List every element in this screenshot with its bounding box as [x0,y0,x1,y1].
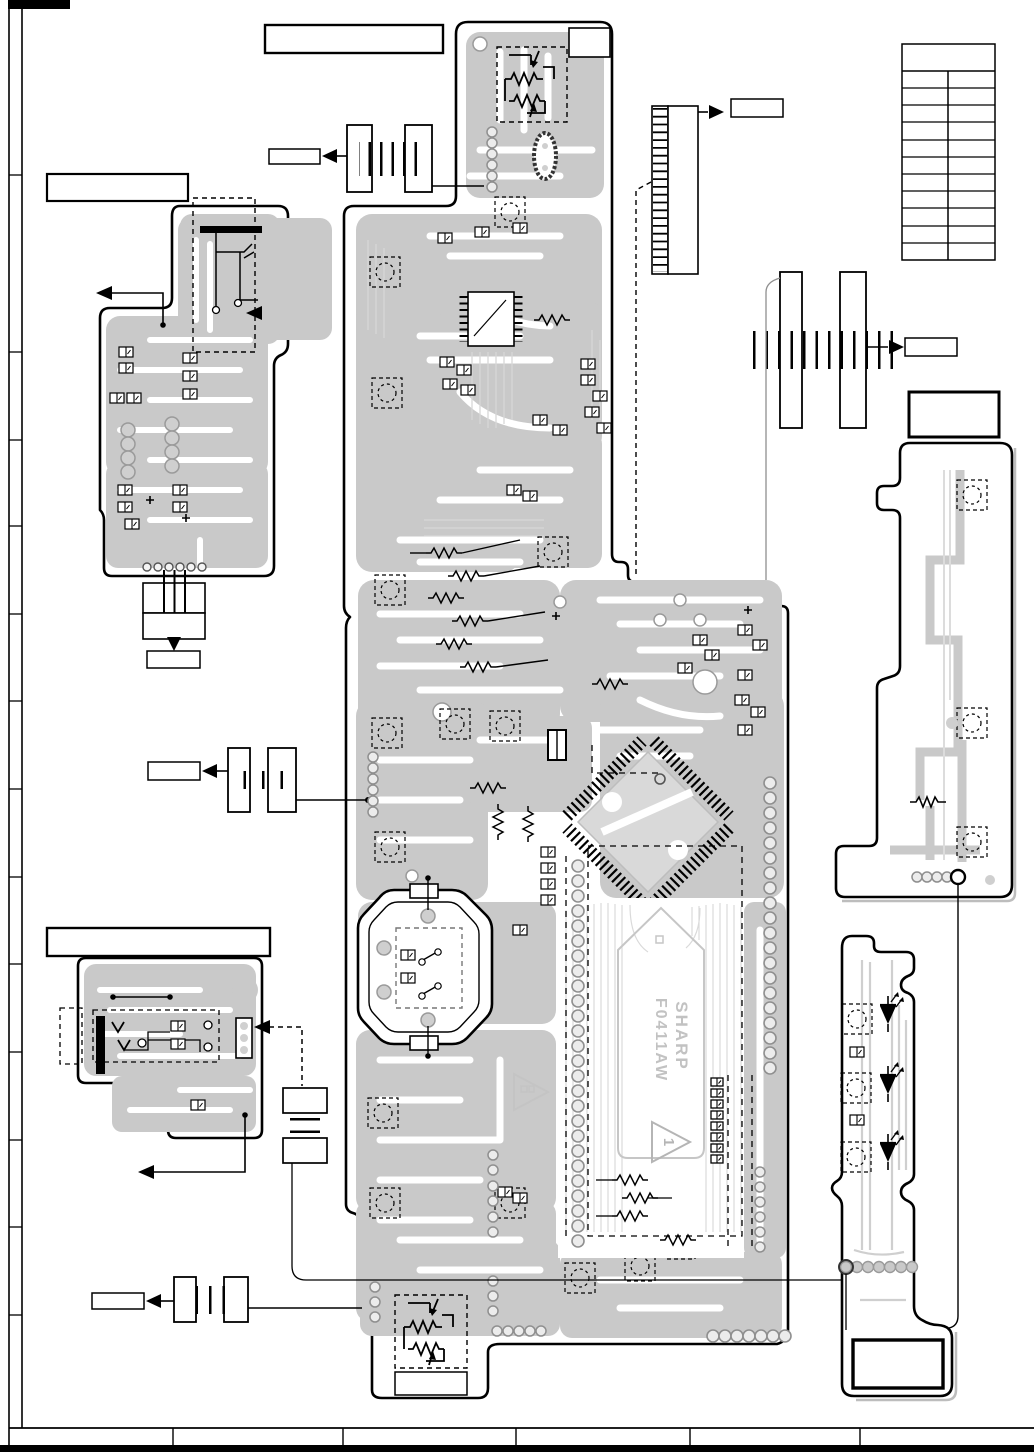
bold-label-box-right [909,392,999,437]
connector-bottom [92,1277,362,1322]
arrow-left-icon [202,764,217,778]
arrow-right-icon [709,105,724,119]
ic-part-label: F0411AW [652,998,669,1082]
sub-board-bottom-connector [143,563,206,668]
callout-bottom-left-board [47,928,270,956]
connector-vertical-ladder [636,99,783,578]
arrow-right-icon [889,340,904,354]
crystal-oscillator [534,133,556,179]
svg-text:1: 1 [660,1138,677,1146]
reference-table [902,44,995,260]
callout-connector-vertical [731,99,783,117]
board-led [832,936,956,1400]
arrow-down-icon [167,637,181,651]
pcb-diagram: SHARP F0411AW [0,0,1034,1452]
footer-title-block [0,1428,1034,1452]
callout-top [265,25,443,53]
bottom-center-label-box [395,1372,467,1395]
tact-switch-cutout [358,875,492,1059]
arrow-left-icon [96,286,112,300]
bold-label-box-bottom-right [853,1340,943,1388]
connector-mid-left [148,748,378,817]
black-bar [96,1016,105,1074]
main-board: SHARP F0411AW [344,22,791,1398]
edge-pads [912,870,965,884]
callout-connector-mid [148,762,200,780]
callout-left-top [47,174,188,201]
arrow-left-icon [138,1165,154,1179]
board-corner-label-box [569,28,610,57]
connector-bottom-left-ladder [283,1088,327,1163]
pcb-diagram-page: SHARP F0411AW [0,0,1034,1452]
ic-footprint [463,292,518,346]
arrow-left-icon [322,149,337,163]
black-bar [200,226,262,233]
callout-sub-board [147,651,200,668]
callout-connector-right [905,338,957,356]
callout-connector-bottom [92,1293,144,1309]
connector-top-horizontal [269,125,484,192]
sub-board-top-left [96,198,332,668]
arrow-left-icon [146,1294,161,1308]
ic-brand-label: SHARP [672,1001,691,1071]
page-margin-strip [8,0,70,1446]
callout-connector-top [269,149,320,164]
